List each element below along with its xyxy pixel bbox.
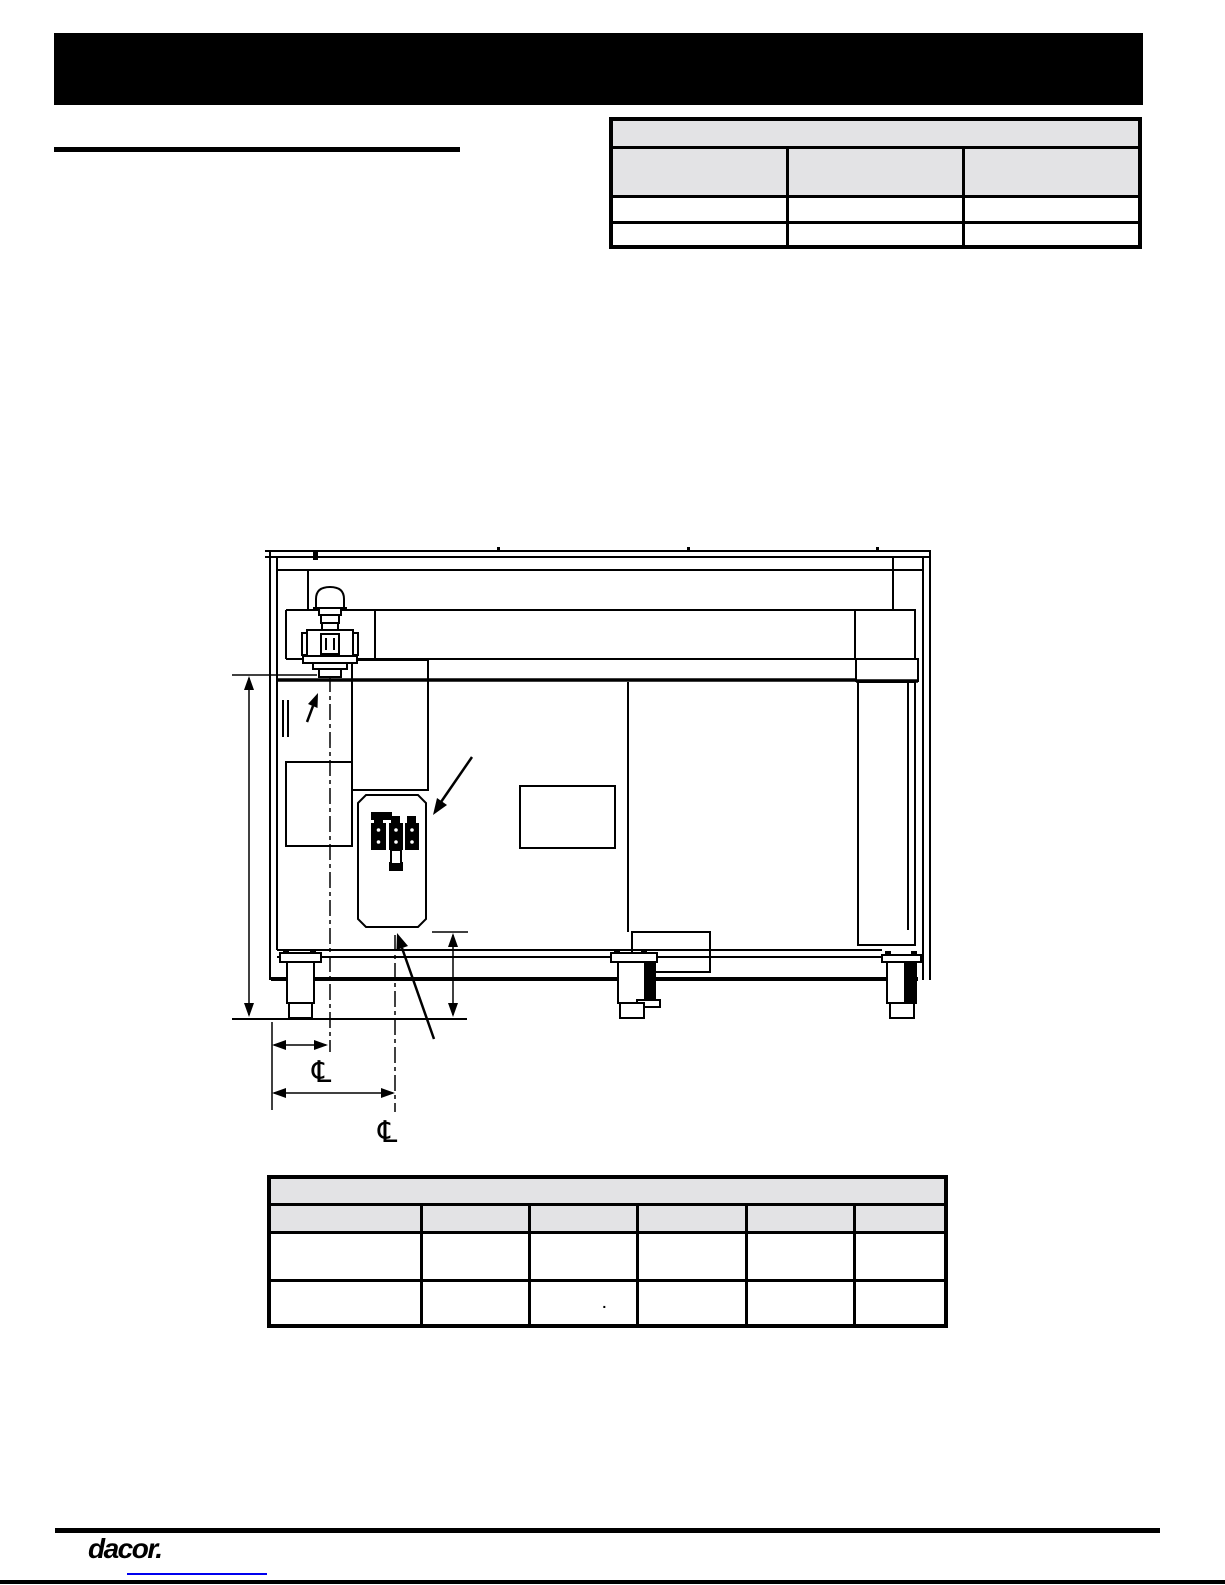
cell [786,224,962,245]
cell [786,198,962,221]
header-cell [962,149,1138,195]
dimension-table: . [267,1175,948,1328]
gas-regulator [302,587,358,677]
header-cell [786,149,962,195]
leveling-legs [280,949,921,1018]
header-cell [745,1206,853,1231]
cell [271,1234,420,1279]
cell [853,1234,944,1279]
cell [528,1234,636,1279]
centerline-symbol: ℄ [311,1055,331,1090]
left-leg [280,949,321,1018]
cell [420,1282,528,1324]
header-cell [853,1206,944,1231]
title-banner [54,33,1143,105]
cell [853,1282,944,1324]
cell [613,224,786,245]
section-heading-underline [54,147,460,152]
right-leg [882,951,921,1018]
cell [613,198,786,221]
electrical-spec-table [609,117,1142,249]
cell [962,224,1138,245]
dacor-logo: dacor. [88,1533,161,1565]
centerline-symbol: ℄ [377,1115,397,1150]
cell [745,1282,853,1324]
cell: . [528,1282,636,1324]
terminal-block-panel [358,795,426,927]
table-row: . [271,1279,944,1324]
dimension-lines [232,675,468,1110]
cell [745,1234,853,1279]
cell [420,1234,528,1279]
installation-diagram: ℄ ℄ [225,540,945,1152]
cell [962,198,1138,221]
table-title-band [613,121,1138,146]
center-leg [611,949,660,1018]
footer-link[interactable] [127,1564,267,1575]
header-cell [420,1206,528,1231]
footer-rule [55,1528,1160,1533]
stray-period: . [602,1296,606,1310]
header-cell [271,1206,420,1231]
table-title-band [271,1179,944,1203]
header-cell [613,149,786,195]
table-row [613,195,1138,221]
table-header-row [613,146,1138,195]
table-row [271,1231,944,1279]
cell [271,1282,420,1324]
table-row [613,221,1138,245]
cell [636,1234,745,1279]
top-edge-ticks [313,547,879,560]
table-header-row [271,1203,944,1231]
header-cell [528,1206,636,1231]
header-cell [636,1206,745,1231]
cell [636,1282,745,1324]
page-bottom-border [0,1580,1225,1584]
